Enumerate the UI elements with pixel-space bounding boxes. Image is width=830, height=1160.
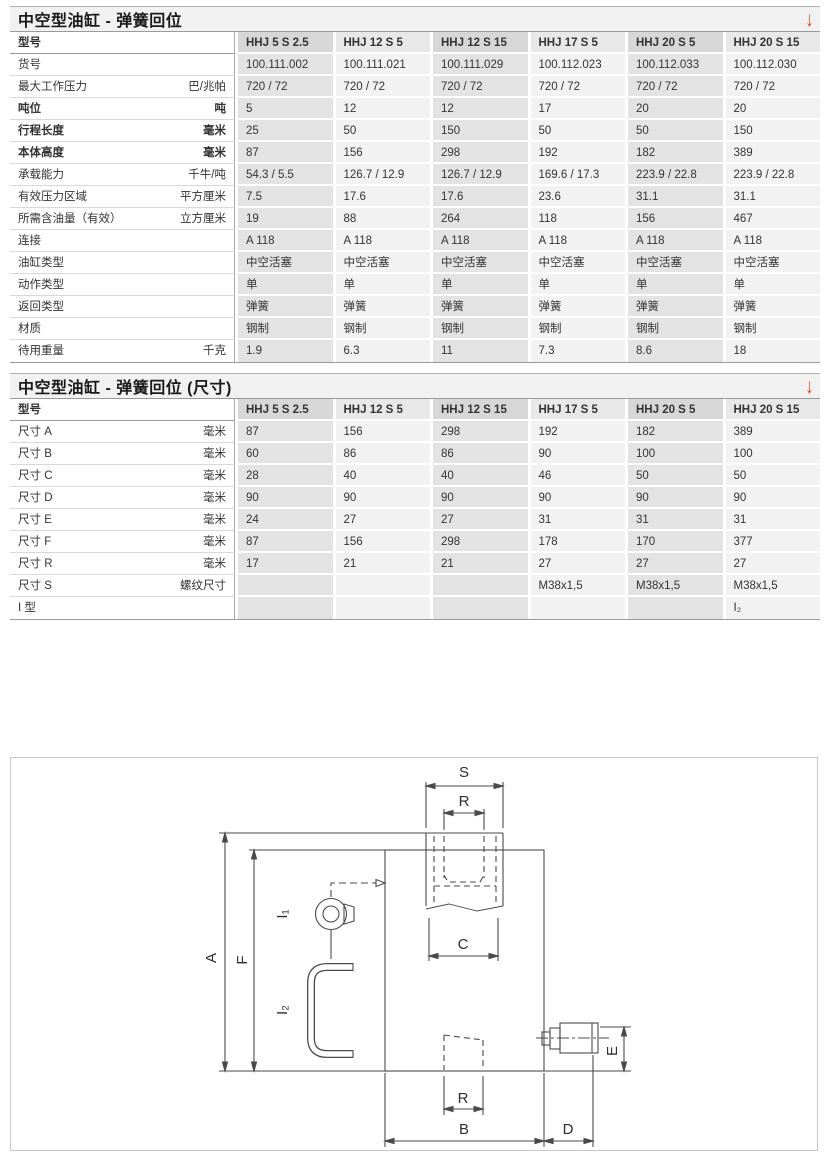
row-label: I 型 [18, 598, 36, 619]
value-cell: 88 [333, 208, 431, 230]
value-cell: 单 [723, 274, 821, 296]
dimensions-table: 型号HHJ 5 S 2.5HHJ 12 S 5HHJ 12 S 15HHJ 17… [10, 398, 820, 620]
row-unit: 千牛/吨 [188, 165, 226, 185]
value-cell: 17 [235, 553, 333, 575]
value-cell: 720 / 72 [528, 76, 626, 98]
value-cell: I₂ [723, 597, 821, 619]
row-label: 最大工作压力 [18, 77, 87, 97]
value-cell: 单 [430, 274, 528, 296]
value-cell: 150 [723, 120, 821, 142]
value-cell: 100 [625, 443, 723, 465]
row-label: 行程长度 [18, 121, 64, 141]
value-cell: 90 [528, 487, 626, 509]
value-cell: 31.1 [625, 186, 723, 208]
value-cell: 389 [723, 142, 821, 164]
value-cell: 50 [625, 465, 723, 487]
value-cell: 126.7 / 12.9 [430, 164, 528, 186]
value-cell: M38x1,5 [528, 575, 626, 597]
header-label: 型号 [18, 400, 41, 420]
value-cell: 40 [333, 465, 431, 487]
value-cell: 11 [430, 340, 528, 362]
label-r-bottom: R [458, 1090, 469, 1107]
label-a: A [203, 953, 220, 963]
row-label: 尺寸 S [18, 576, 52, 596]
row-unit: 毫米 [203, 554, 226, 574]
row-label: 待用重量 [18, 341, 64, 362]
value-cell [333, 575, 431, 597]
value-cell: 钢制 [333, 318, 431, 340]
value-cell: 单 [625, 274, 723, 296]
row-unit: 毫米 [203, 422, 226, 442]
value-cell: 182 [625, 142, 723, 164]
row-label-cell: 材质 [10, 318, 235, 340]
value-cell: 192 [528, 142, 626, 164]
value-cell: 100.111.021 [333, 54, 431, 76]
value-cell: 27 [528, 553, 626, 575]
value-cell: 720 / 72 [723, 76, 821, 98]
leader-dashed-line [331, 883, 377, 897]
value-cell: 720 / 72 [430, 76, 528, 98]
value-cell: 100.112.033 [625, 54, 723, 76]
label-d: D [563, 1121, 574, 1138]
value-cell [430, 597, 528, 619]
row-label-cell: 尺寸 A毫米 [10, 421, 235, 443]
row-label: 返回类型 [18, 297, 64, 317]
model-name-header: HHJ 17 S 5 [528, 399, 626, 421]
value-cell: 中空活塞 [333, 252, 431, 274]
value-cell: 87 [235, 421, 333, 443]
value-cell: A 118 [625, 230, 723, 252]
model-name-header: HHJ 20 S 5 [625, 32, 723, 54]
row-unit: 千克 [203, 341, 226, 362]
row-label: 吨位 [18, 99, 41, 119]
value-cell: 17.6 [333, 186, 431, 208]
value-cell: 100 [723, 443, 821, 465]
value-cell: 298 [430, 421, 528, 443]
row-label: 承载能力 [18, 165, 64, 185]
value-cell: 87 [235, 142, 333, 164]
value-cell: 90 [625, 487, 723, 509]
value-cell: 86 [333, 443, 431, 465]
row-label-cell: I 型 [10, 597, 235, 619]
eye-bolt-icon [316, 899, 355, 960]
row-label: 尺寸 R [18, 554, 53, 574]
value-cell: 86 [430, 443, 528, 465]
model-name-header: HHJ 12 S 15 [430, 32, 528, 54]
value-cell: 7.3 [528, 340, 626, 362]
value-cell: 720 / 72 [333, 76, 431, 98]
row-label: 所需含油量（有效） [18, 209, 122, 229]
cylinder-dimension-drawing: S R C A F I₁ I₂ E R B D [11, 758, 817, 1150]
value-cell: 90 [528, 443, 626, 465]
down-arrow-icon: ↓ [805, 9, 814, 30]
value-cell: 298 [430, 531, 528, 553]
value-cell: A 118 [333, 230, 431, 252]
label-i1: I₁ [274, 909, 291, 918]
value-cell: 60 [235, 443, 333, 465]
row-label: 尺寸 B [18, 444, 52, 464]
value-cell: 5 [235, 98, 333, 120]
label-s: S [459, 764, 469, 781]
coupler-fitting [536, 1023, 609, 1053]
value-cell: 182 [625, 421, 723, 443]
value-cell: 50 [723, 465, 821, 487]
value-cell: 31.1 [723, 186, 821, 208]
spec-table-section: 中空型油缸 - 弹簧回位 ↓ 型号HHJ 5 S 2.5HHJ 12 S 5HH… [10, 6, 820, 363]
row-label-cell: 最大工作压力巴/兆帕 [10, 76, 235, 98]
value-cell: 46 [528, 465, 626, 487]
row-label: 油缸类型 [18, 253, 64, 273]
value-cell: 169.6 / 17.3 [528, 164, 626, 186]
value-cell: 27 [625, 553, 723, 575]
section-title-bar: 中空型油缸 - 弹簧回位 ↓ [10, 6, 820, 31]
section-title: 中空型油缸 - 弹簧回位 [18, 7, 182, 31]
row-label: 材质 [18, 319, 41, 339]
row-label: 连接 [18, 231, 41, 251]
value-cell: 389 [723, 421, 821, 443]
value-cell: 90 [723, 487, 821, 509]
value-cell: 弹簧 [723, 296, 821, 318]
value-cell: 弹簧 [625, 296, 723, 318]
value-cell: 90 [235, 487, 333, 509]
header-label: 型号 [18, 33, 41, 53]
row-label: 动作类型 [18, 275, 64, 295]
value-cell: 156 [333, 531, 431, 553]
row-unit: 吨 [215, 99, 227, 119]
row-unit: 巴/兆帕 [188, 77, 226, 97]
value-cell: 钢制 [528, 318, 626, 340]
label-i2: I₂ [274, 1005, 291, 1015]
value-cell: 31 [723, 509, 821, 531]
section-title: 中空型油缸 - 弹簧回位 (尺寸) [18, 374, 232, 398]
value-cell: 19 [235, 208, 333, 230]
row-label: 货号 [18, 55, 41, 75]
section-title-bar: 中空型油缸 - 弹簧回位 (尺寸) ↓ [10, 373, 820, 398]
row-label: 有效压力区域 [18, 187, 87, 207]
row-label: 尺寸 C [18, 466, 53, 486]
row-label: 本体高度 [18, 143, 64, 163]
value-cell: 8.6 [625, 340, 723, 362]
value-cell: 27 [723, 553, 821, 575]
value-cell: 钢制 [723, 318, 821, 340]
value-cell: 100.111.029 [430, 54, 528, 76]
label-f: F [234, 955, 251, 964]
model-name-header: HHJ 17 S 5 [528, 32, 626, 54]
value-cell: 178 [528, 531, 626, 553]
row-label-cell: 尺寸 D毫米 [10, 487, 235, 509]
row-unit: 平方厘米 [180, 187, 226, 207]
row-label-cell: 返回类型 [10, 296, 235, 318]
value-cell: 720 / 72 [625, 76, 723, 98]
value-cell: 156 [333, 421, 431, 443]
model-name-header: HHJ 5 S 2.5 [235, 399, 333, 421]
value-cell: 弹簧 [528, 296, 626, 318]
value-cell: 中空活塞 [723, 252, 821, 274]
value-cell: 40 [430, 465, 528, 487]
model-name-header: HHJ 12 S 15 [430, 399, 528, 421]
row-label-cell: 所需含油量（有效）立方厘米 [10, 208, 235, 230]
model-name-header: HHJ 20 S 5 [625, 399, 723, 421]
row-label-cell: 尺寸 E毫米 [10, 509, 235, 531]
down-arrow-icon: ↓ [805, 376, 814, 397]
value-cell: 20 [625, 98, 723, 120]
value-cell: 298 [430, 142, 528, 164]
row-label-cell: 承载能力千牛/吨 [10, 164, 235, 186]
value-cell: 150 [430, 120, 528, 142]
dimension-r-top [444, 809, 484, 830]
collar-outline [426, 833, 503, 911]
value-cell: 20 [723, 98, 821, 120]
value-cell: 中空活塞 [625, 252, 723, 274]
value-cell: 中空活塞 [430, 252, 528, 274]
hidden-piston-lines [444, 1035, 483, 1070]
row-label-cell: 吨位吨 [10, 98, 235, 120]
row-unit: 毫米 [203, 143, 226, 163]
value-cell: 50 [528, 120, 626, 142]
value-cell [235, 575, 333, 597]
dimensions-table-section: 中空型油缸 - 弹簧回位 (尺寸) ↓ 型号HHJ 5 S 2.5HHJ 12 … [10, 373, 820, 620]
row-unit: 毫米 [203, 532, 226, 552]
model-name-header: HHJ 20 S 15 [723, 399, 821, 421]
value-cell: 21 [430, 553, 528, 575]
row-label-cell: 动作类型 [10, 274, 235, 296]
row-label-cell: 尺寸 R毫米 [10, 553, 235, 575]
hidden-bore-lines [434, 836, 496, 904]
technical-drawing-panel: S R C A F I₁ I₂ E R B D [10, 757, 818, 1151]
value-cell: 12 [333, 98, 431, 120]
model-column-header: 型号 [10, 32, 235, 54]
leader-arrowhead [376, 880, 385, 887]
value-cell: 100.111.002 [235, 54, 333, 76]
value-cell: 23.6 [528, 186, 626, 208]
row-unit: 毫米 [203, 466, 226, 486]
value-cell: 单 [528, 274, 626, 296]
row-unit: 毫米 [203, 510, 226, 530]
row-label: 尺寸 A [18, 422, 52, 442]
value-cell: 钢制 [235, 318, 333, 340]
value-cell: 7.5 [235, 186, 333, 208]
value-cell: 100.112.023 [528, 54, 626, 76]
value-cell: 156 [333, 142, 431, 164]
value-cell: 100.112.030 [723, 54, 821, 76]
value-cell: 54.3 / 5.5 [235, 164, 333, 186]
value-cell: 118 [528, 208, 626, 230]
row-unit: 立方厘米 [180, 209, 226, 229]
row-label-cell: 尺寸 F毫米 [10, 531, 235, 553]
value-cell: 90 [430, 487, 528, 509]
value-cell: 中空活塞 [235, 252, 333, 274]
model-column-header: 型号 [10, 399, 235, 421]
value-cell: 467 [723, 208, 821, 230]
row-label-cell: 尺寸 C毫米 [10, 465, 235, 487]
value-cell: 中空活塞 [528, 252, 626, 274]
value-cell: A 118 [723, 230, 821, 252]
value-cell: 单 [333, 274, 431, 296]
model-name-header: HHJ 12 S 5 [333, 32, 431, 54]
handle-icon [311, 963, 353, 1058]
value-cell [333, 597, 431, 619]
value-cell: 弹簧 [235, 296, 333, 318]
value-cell: 27 [430, 509, 528, 531]
value-cell: A 118 [430, 230, 528, 252]
row-label: 尺寸 D [18, 488, 53, 508]
row-label-cell: 油缸类型 [10, 252, 235, 274]
value-cell: 87 [235, 531, 333, 553]
row-label-cell: 行程长度毫米 [10, 120, 235, 142]
value-cell: 156 [625, 208, 723, 230]
row-unit: 毫米 [203, 488, 226, 508]
value-cell: 223.9 / 22.8 [723, 164, 821, 186]
value-cell: 12 [430, 98, 528, 120]
value-cell: 钢制 [625, 318, 723, 340]
value-cell: 17 [528, 98, 626, 120]
value-cell: M38x1,5 [625, 575, 723, 597]
value-cell: 50 [333, 120, 431, 142]
model-name-header: HHJ 20 S 15 [723, 32, 821, 54]
value-cell: 31 [625, 509, 723, 531]
row-label-cell: 待用重量千克 [10, 340, 235, 362]
row-label-cell: 连接 [10, 230, 235, 252]
row-label: 尺寸 F [18, 532, 51, 552]
spec-table: 型号HHJ 5 S 2.5HHJ 12 S 5HHJ 12 S 15HHJ 17… [10, 31, 820, 363]
value-cell: 170 [625, 531, 723, 553]
model-name-header: HHJ 5 S 2.5 [235, 32, 333, 54]
value-cell: 单 [235, 274, 333, 296]
label-c: C [458, 936, 469, 953]
value-cell: M38x1,5 [723, 575, 821, 597]
label-r-top: R [459, 793, 470, 810]
value-cell: 24 [235, 509, 333, 531]
label-e: E [604, 1046, 621, 1056]
value-cell: 223.9 / 22.8 [625, 164, 723, 186]
value-cell: 192 [528, 421, 626, 443]
value-cell: 弹簧 [333, 296, 431, 318]
row-label-cell: 尺寸 S螺纹尺寸 [10, 575, 235, 597]
value-cell: 21 [333, 553, 431, 575]
value-cell: 27 [333, 509, 431, 531]
value-cell: 18 [723, 340, 821, 362]
value-cell: 弹簧 [430, 296, 528, 318]
row-label-cell: 有效压力区域平方厘米 [10, 186, 235, 208]
value-cell: 90 [333, 487, 431, 509]
value-cell: 126.7 / 12.9 [333, 164, 431, 186]
value-cell: 25 [235, 120, 333, 142]
value-cell: 264 [430, 208, 528, 230]
row-unit: 螺纹尺寸 [180, 576, 226, 596]
value-cell [235, 597, 333, 619]
value-cell: 28 [235, 465, 333, 487]
row-unit: 毫米 [203, 444, 226, 464]
value-cell [625, 597, 723, 619]
value-cell: A 118 [528, 230, 626, 252]
value-cell: A 118 [235, 230, 333, 252]
value-cell: 50 [625, 120, 723, 142]
row-label-cell: 尺寸 B毫米 [10, 443, 235, 465]
value-cell: 钢制 [430, 318, 528, 340]
datasheet-page: 中空型油缸 - 弹簧回位 ↓ 型号HHJ 5 S 2.5HHJ 12 S 5HH… [0, 0, 830, 1160]
value-cell: 377 [723, 531, 821, 553]
value-cell: 720 / 72 [235, 76, 333, 98]
value-cell [528, 597, 626, 619]
label-b: B [459, 1121, 469, 1138]
row-unit: 毫米 [203, 121, 226, 141]
row-label-cell: 本体高度毫米 [10, 142, 235, 164]
row-label: 尺寸 E [18, 510, 52, 530]
row-label-cell: 货号 [10, 54, 235, 76]
value-cell: 17.6 [430, 186, 528, 208]
dimension-a [219, 833, 426, 1071]
value-cell: 6.3 [333, 340, 431, 362]
value-cell: 31 [528, 509, 626, 531]
model-name-header: HHJ 12 S 5 [333, 399, 431, 421]
value-cell [430, 575, 528, 597]
value-cell: 1.9 [235, 340, 333, 362]
